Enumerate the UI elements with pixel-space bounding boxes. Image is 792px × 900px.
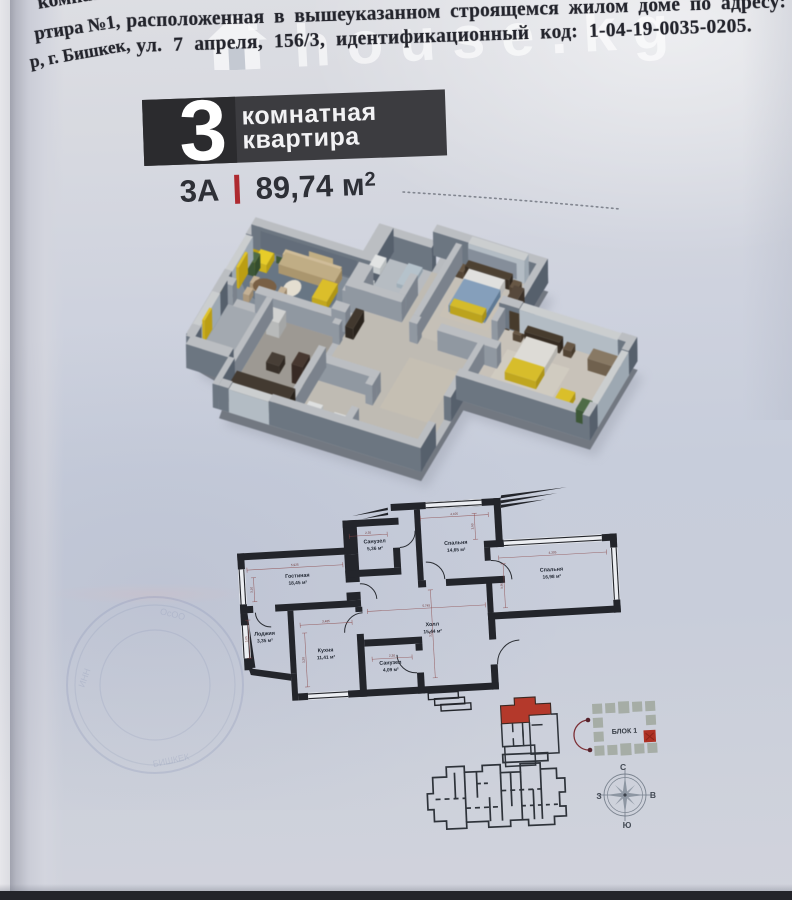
svg-text:В: В	[650, 790, 656, 800]
svg-text:Ю: Ю	[623, 820, 632, 830]
svg-text:С: С	[620, 762, 626, 772]
svg-text:З: З	[596, 791, 601, 801]
svg-text:БЛОК 1: БЛОК 1	[612, 728, 638, 736]
